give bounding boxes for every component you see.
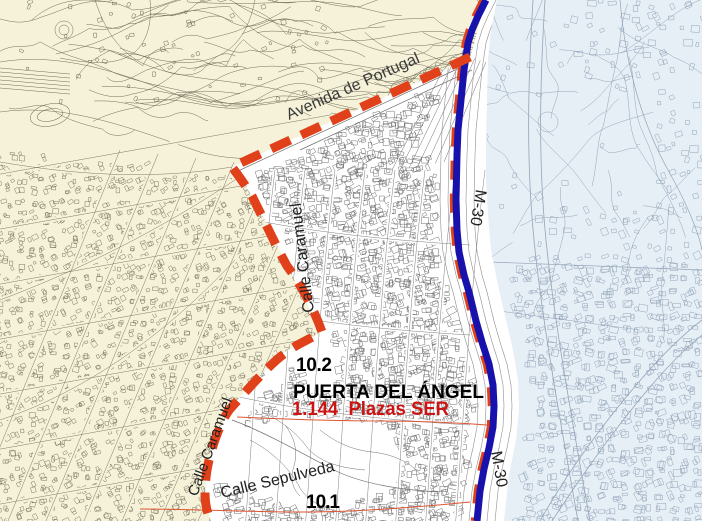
svg-text:10.1: 10.1 [306, 492, 340, 513]
svg-text:10.2: 10.2 [296, 355, 332, 376]
svg-text:1.144 Plazas SER: 1.144 Plazas SER [292, 399, 449, 420]
